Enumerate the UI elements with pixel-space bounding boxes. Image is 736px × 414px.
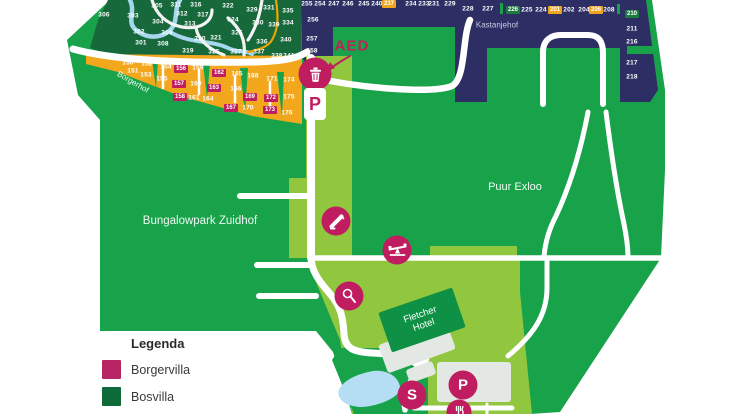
legend-item-label: Borgervilla (131, 363, 190, 377)
plot-number: 173 (263, 106, 277, 114)
plot-number: 340 (280, 37, 291, 44)
plot-number: 320 (194, 36, 205, 43)
borgervilla-swatch (102, 360, 121, 379)
plot-number: 329 (246, 7, 257, 14)
curved-road-west (544, 112, 588, 257)
legend: Legenda Borgervilla Bosvilla (102, 336, 272, 414)
supermarket-letter: S (407, 387, 417, 404)
plot-number: 165 (231, 71, 242, 78)
parking-icon: P (449, 371, 478, 400)
plot-number: 175 (283, 94, 294, 101)
puur-exloo-label: Puur Exloo (488, 181, 542, 193)
park-map: Fletcher Hotel P AED S P Bungalowpark Zu… (0, 0, 736, 414)
plot-number: 330 (252, 20, 263, 27)
racket-icon (335, 282, 364, 311)
plot-number: 152 (141, 61, 152, 68)
plot-number: 176 (281, 110, 292, 117)
plot-number: 171 (266, 76, 277, 83)
kastanjehof-label: Kastanjehof (476, 21, 518, 30)
plot-number: 247 (328, 1, 339, 8)
plot-number: 337 (253, 49, 264, 56)
plot-number: 305 (151, 3, 162, 10)
plot-number: 304 (152, 19, 163, 26)
plot-number: 166 (230, 86, 241, 93)
parking-badge: P (304, 88, 326, 120)
plot-number: 303 (127, 13, 138, 20)
plot-number: 325 (208, 49, 219, 56)
plot-number: 237 (382, 0, 396, 8)
plot-number: 308 (157, 41, 168, 48)
plot-number: 160 (190, 81, 201, 88)
plot-number: 319 (182, 48, 193, 55)
slide-icon (322, 207, 351, 236)
plot-number: 245 (358, 1, 369, 8)
plot-number: 338 (271, 53, 282, 60)
plot-number: 231 (428, 1, 439, 8)
plot-number: 216 (626, 39, 637, 46)
curved-road-east (606, 112, 628, 257)
kastanjehof-road (316, 20, 470, 90)
legend-item-bosvilla: Bosvilla (102, 387, 272, 406)
plot-number: 211 (626, 26, 637, 33)
road-to-hotel-east (508, 259, 547, 356)
plot-number: 174 (283, 77, 294, 84)
plot-number: 321 (210, 35, 221, 42)
parking-letter: P (458, 377, 468, 394)
plot-number: 151 (127, 68, 138, 75)
plot-number: 172 (264, 94, 278, 102)
plot-number: 313 (184, 21, 195, 28)
plot-number: 157 (172, 80, 186, 88)
plot-number: 226 (506, 6, 520, 14)
plot-number: 324 (227, 17, 238, 24)
plot-number: 158 (173, 93, 187, 101)
plot-number: 164 (202, 96, 213, 103)
plot-number: 168 (247, 73, 258, 80)
plot-number: 258 (306, 48, 317, 55)
plot-number: 217 (626, 60, 637, 67)
plot-number: 326 (231, 30, 242, 37)
plot-number: 228 (462, 6, 473, 13)
plot-number: 170 (242, 105, 253, 112)
plot-number: 335 (282, 8, 293, 15)
plot-number: 154 (160, 64, 171, 71)
legend-item-label: Bosvilla (131, 390, 174, 404)
plot-number: 256 (307, 17, 318, 24)
plot-number: 257 (306, 36, 317, 43)
plot-number: 334 (282, 20, 293, 27)
plot-number: 161 (188, 95, 199, 102)
plot-number: 225 (521, 7, 532, 14)
plot-number: 316 (190, 2, 201, 9)
plot-number: 302 (133, 29, 144, 36)
plot-number: 331 (263, 5, 274, 12)
plot-number: 162 (212, 69, 226, 77)
plot-number: 317 (197, 12, 208, 19)
plot-number: 254 (314, 1, 325, 8)
plot-number: 339 (268, 22, 279, 29)
plot-number: 336 (256, 39, 267, 46)
plot-number: 229 (444, 1, 455, 8)
plot-number: 159 (192, 65, 203, 72)
waste-bin-icon (299, 58, 332, 91)
plot-number: 206 (589, 6, 603, 14)
legend-item-borgervilla: Borgervilla (102, 360, 272, 379)
plot-number: 227 (482, 6, 493, 13)
seesaw-icon (383, 236, 412, 265)
plot-number: 255 (301, 1, 312, 8)
plot-number: 234 (405, 1, 416, 8)
plot-number: 246 (342, 1, 353, 8)
plot-number: 301 (135, 40, 146, 47)
parking-badge-letter: P (309, 94, 321, 115)
plot-number: 153 (140, 72, 151, 79)
plot-number: 312 (176, 11, 187, 18)
plot-number: 201 (548, 6, 562, 14)
plot-number: 163 (207, 84, 221, 92)
plot-number: 224 (535, 7, 546, 14)
plot-number: 210 (625, 10, 639, 18)
plot-number: 306 (98, 12, 109, 19)
plot-number: 156 (174, 65, 188, 73)
plot-number: 322 (222, 3, 233, 10)
loop-road (543, 35, 603, 104)
park-name-label: Bungalowpark Zuidhof (143, 215, 257, 227)
plot-number: 309 (161, 30, 172, 37)
plot-number: 341 (283, 53, 294, 60)
plot-number: 155 (156, 76, 167, 83)
plot-number: 208 (603, 7, 614, 14)
plot-number: 167 (224, 104, 238, 112)
plot-number: 218 (626, 74, 637, 81)
plot-number: 202 (563, 7, 574, 14)
aed-label: AED (335, 38, 370, 55)
plot-number: 150 (122, 60, 133, 67)
bosvilla-swatch (102, 387, 121, 406)
legend-title: Legenda (131, 336, 272, 351)
supermarket-icon: S (398, 381, 427, 410)
plot-number: 169 (243, 93, 257, 101)
plot-number: 311 (170, 2, 181, 9)
plot-number: 327 (230, 49, 241, 56)
